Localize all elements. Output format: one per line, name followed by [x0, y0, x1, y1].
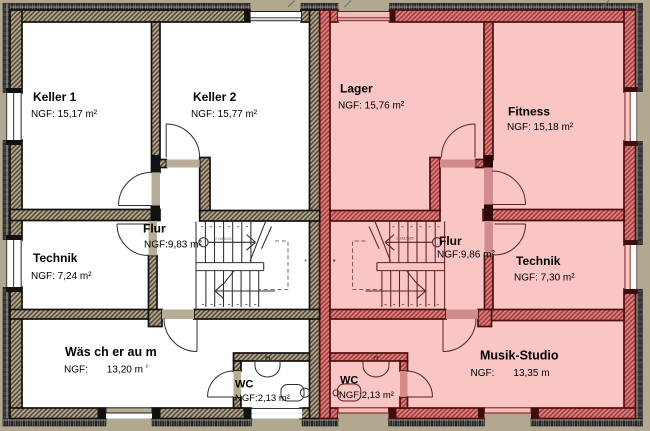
svg-text:WC: WC [235, 379, 253, 391]
svg-text:NGF: 15,18 m²: NGF: 15,18 m² [507, 122, 574, 133]
svg-text:NGF: 7,24 m²: NGF: 7,24 m² [31, 271, 92, 282]
svg-text:Lager: Lager [340, 82, 373, 96]
svg-text:NGF: 15,76 m²: NGF: 15,76 m² [338, 101, 405, 112]
svg-text:13,35 m: 13,35 m [513, 368, 549, 379]
svg-text:Keller 2: Keller 2 [193, 90, 237, 104]
svg-text:Technik: Technik [33, 251, 78, 265]
svg-text:Flur: Flur [143, 222, 166, 236]
svg-text:Musik-Studio: Musik-Studio [480, 349, 559, 363]
svg-text:Technik: Technik [516, 254, 561, 268]
svg-text:Wäs ch er au m: Wäs ch er au m [65, 345, 157, 359]
svg-text:17x18,6x25: 17x18,6x25 [214, 237, 232, 241]
svg-text:13,20 m: 13,20 m [107, 365, 143, 376]
svg-text:NGF: 15,17 m²: NGF: 15,17 m² [31, 109, 98, 120]
svg-text:Keller 1: Keller 1 [33, 90, 77, 104]
svg-text:NGF:: NGF: [471, 368, 495, 379]
svg-text:Fitness: Fitness [508, 105, 550, 119]
svg-text:NGF:9,86 m²: NGF:9,86 m² [437, 250, 495, 261]
svg-text:Flur: Flur [439, 234, 462, 248]
svg-text:NGF:9,83 m²: NGF:9,83 m² [144, 240, 202, 251]
svg-text:NGF: 7,30 m²: NGF: 7,30 m² [514, 273, 575, 284]
svg-text:WC: WC [340, 375, 358, 387]
svg-text:NGF: 15,77 m²: NGF: 15,77 m² [191, 109, 258, 120]
svg-text:17x18,6x25: 17x18,6x25 [396, 236, 414, 240]
svg-text:NGF:2,13 m²: NGF:2,13 m² [339, 390, 394, 401]
svg-text:NGF:: NGF: [64, 365, 88, 376]
svg-text:NGF:2,13 m²: NGF:2,13 m² [235, 393, 290, 404]
